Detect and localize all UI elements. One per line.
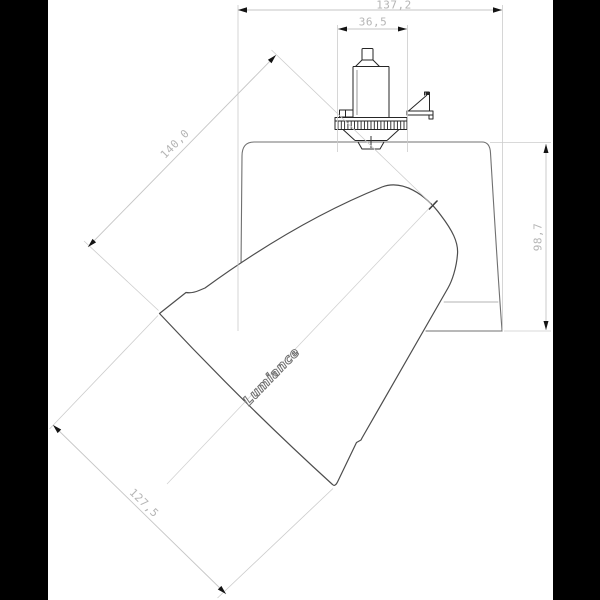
technical-drawing [0,0,600,600]
dim-label-overall-width: 137,2 [376,0,412,12]
drawing-canvas: 137,2 36,5 140,0 127,5 98,7 Lumiance [0,0,600,600]
track-adapter [335,49,433,150]
mounting-bracket [407,92,433,120]
dim-label-body-height: 98,7 [532,223,545,252]
dim-label-adapter-width: 36,5 [359,16,388,29]
